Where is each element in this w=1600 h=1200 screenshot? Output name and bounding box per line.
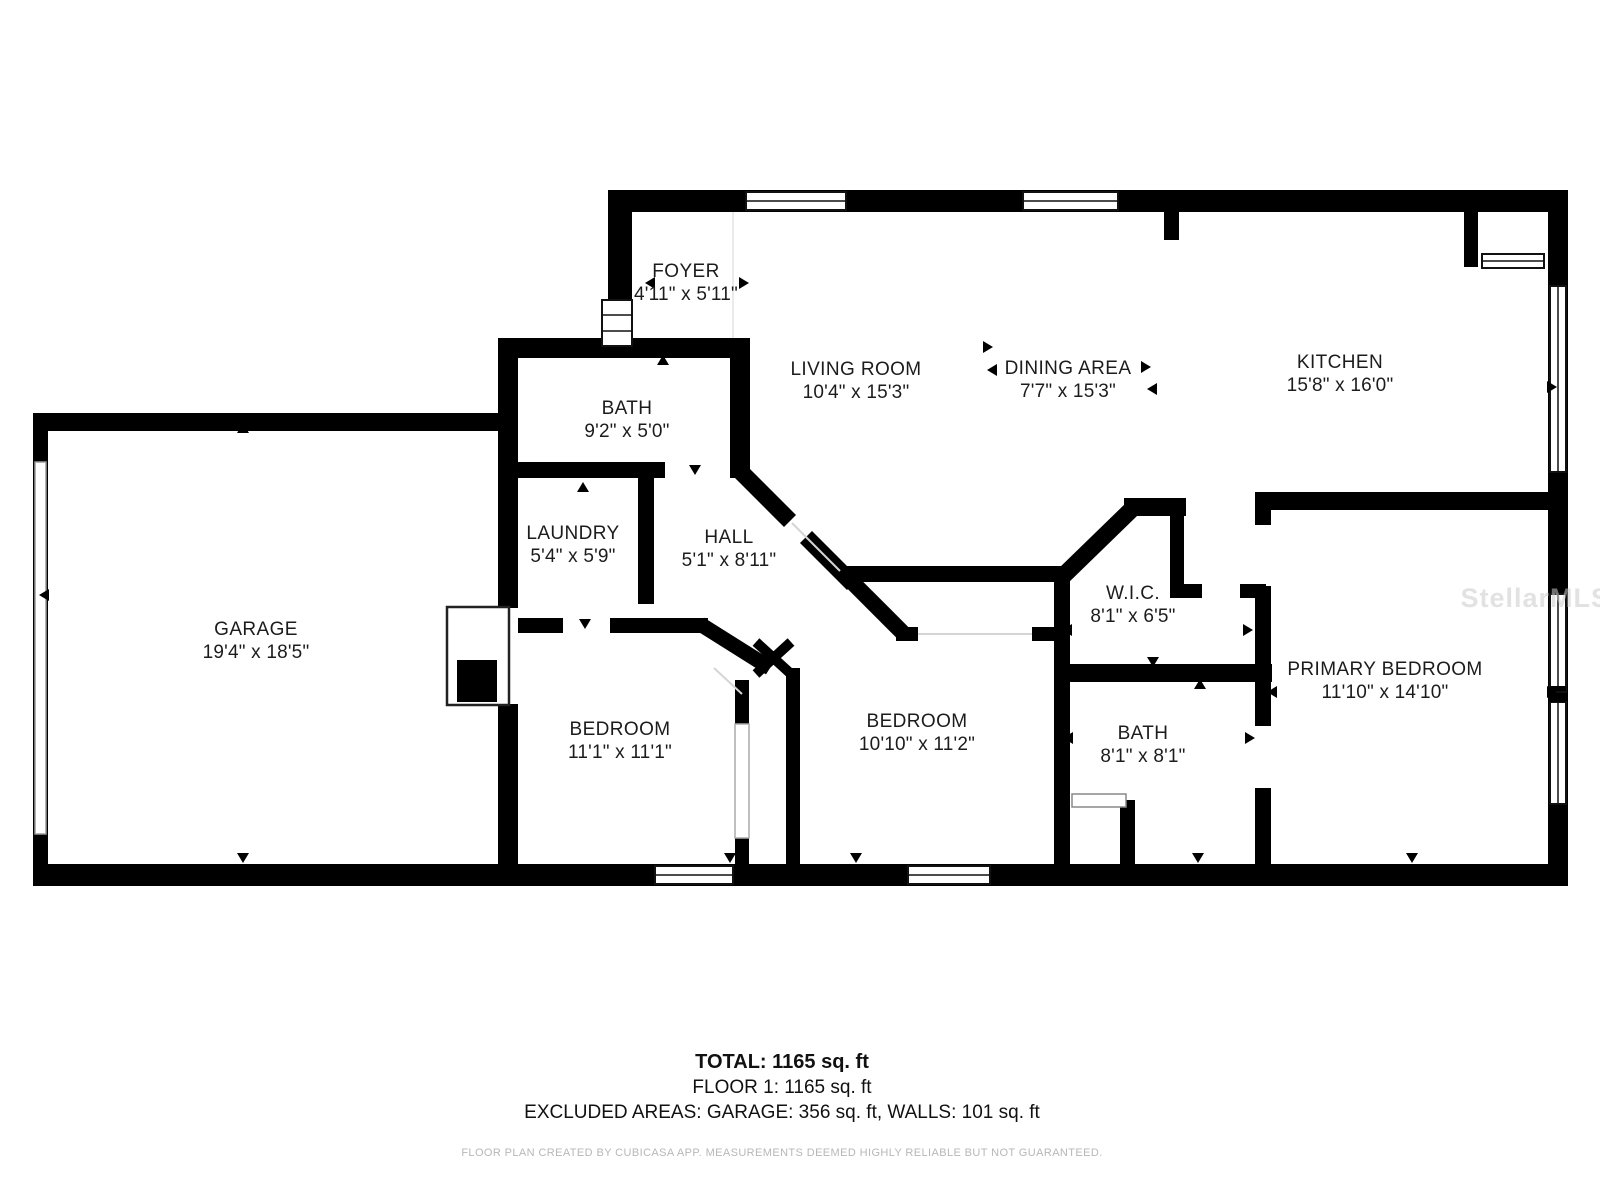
total-area: TOTAL: 1165 sq. ft (0, 1050, 1582, 1074)
door-swing-lines (714, 212, 1032, 694)
opening-marker-icon (724, 853, 736, 863)
walls (33, 190, 1568, 886)
room-dims: 9'2" x 5'0" (584, 420, 669, 443)
room-name: BEDROOM (859, 710, 975, 733)
opening-marker-icon (850, 853, 862, 863)
room-dims: 15'8" x 16'0" (1287, 374, 1394, 397)
room-dims: 8'1" x 8'1" (1100, 745, 1185, 768)
room-label-bath-primary: BATH8'1" x 8'1" (1100, 722, 1185, 768)
room-label-garage: GARAGE19'4" x 18'5" (203, 618, 310, 664)
floor-plan-drawing (0, 0, 1600, 1200)
room-name: BATH (1100, 722, 1185, 745)
garage-window-icon (35, 462, 46, 834)
room-name: BATH (584, 397, 669, 420)
room-label-wic: W.I.C.8'1" x 6'5" (1090, 582, 1175, 628)
closet-slider-icon (735, 724, 749, 838)
opening-marker-icon (987, 364, 997, 376)
opening-marker-icon (739, 277, 749, 289)
floor-plan: FOYER4'11" x 5'11"BATH9'2" x 5'0"LIVING … (0, 0, 1600, 1200)
room-dims: 11'1" x 11'1" (568, 741, 672, 764)
garage-door-icon (447, 607, 509, 705)
room-label-bedroom-left: BEDROOM11'1" x 11'1" (568, 718, 672, 764)
room-label-kitchen: KITCHEN15'8" x 16'0" (1287, 351, 1394, 397)
window-icons (35, 192, 1566, 884)
disclaimer: FLOOR PLAN CREATED BY CUBICASA APP. MEAS… (0, 1146, 1582, 1160)
room-name: PRIMARY BEDROOM (1287, 658, 1482, 681)
floor-area: FLOOR 1: 1165 sq. ft (0, 1076, 1582, 1099)
room-dims: 10'4" x 15'3" (790, 381, 921, 404)
room-name: GARAGE (203, 618, 310, 641)
room-name: LAUNDRY (526, 522, 619, 545)
opening-marker-icon (1243, 624, 1253, 636)
opening-marker-icon (237, 853, 249, 863)
room-label-primary-bedroom: PRIMARY BEDROOM11'10" x 14'10" (1287, 658, 1482, 704)
room-name: BEDROOM (568, 718, 672, 741)
room-dims: 10'10" x 11'2" (859, 733, 975, 756)
room-label-bedroom-middle: BEDROOM10'10" x 11'2" (859, 710, 975, 756)
opening-marker-icon (1147, 383, 1157, 395)
room-name: FOYER (634, 260, 738, 283)
front-door-icon (602, 300, 632, 346)
room-dims: 11'10" x 14'10" (1287, 681, 1482, 704)
opening-marker-icon (983, 341, 993, 353)
room-label-living-room: LIVING ROOM10'4" x 15'3" (790, 358, 921, 404)
room-label-laundry: LAUNDRY5'4" x 5'9" (526, 522, 619, 568)
bath-alcove-door-icon (1072, 794, 1126, 807)
room-label-dining-area: DINING AREA7'7" x 15'3" (1005, 357, 1132, 403)
room-name: DINING AREA (1005, 357, 1132, 380)
room-dims: 5'4" x 5'9" (526, 545, 619, 568)
room-name: LIVING ROOM (790, 358, 921, 381)
room-dims: 5'1" x 8'11" (682, 549, 777, 572)
opening-marker-icon (1192, 853, 1204, 863)
room-dims: 19'4" x 18'5" (203, 641, 310, 664)
watermark: StellarMLS (1460, 583, 1600, 614)
opening-marker-icon (577, 482, 589, 492)
room-label-foyer: FOYER4'11" x 5'11" (634, 260, 738, 306)
opening-marker-icon (1406, 853, 1418, 863)
opening-marker-icon (1245, 732, 1255, 744)
excluded-areas: EXCLUDED AREAS: GARAGE: 356 sq. ft, WALL… (0, 1101, 1582, 1124)
room-dims: 4'11" x 5'11" (634, 283, 738, 306)
room-name: KITCHEN (1287, 351, 1394, 374)
room-name: HALL (682, 526, 777, 549)
area-summary: TOTAL: 1165 sq. ft FLOOR 1: 1165 sq. ft … (0, 1050, 1582, 1160)
room-dims: 7'7" x 15'3" (1005, 380, 1132, 403)
room-name: W.I.C. (1090, 582, 1175, 605)
opening-marker-icon (1141, 361, 1151, 373)
room-label-bath-upper: BATH9'2" x 5'0" (584, 397, 669, 443)
room-dims: 8'1" x 6'5" (1090, 605, 1175, 628)
opening-marker-icon (689, 465, 701, 475)
room-label-hall: HALL5'1" x 8'11" (682, 526, 777, 572)
opening-marker-icon (579, 619, 591, 629)
